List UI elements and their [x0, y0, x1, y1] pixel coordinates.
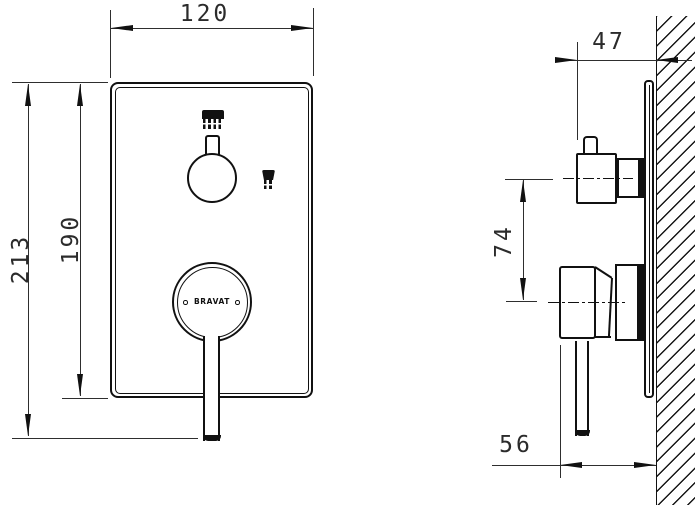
lever-end-cap	[203, 435, 221, 441]
extension-line	[12, 82, 108, 83]
hand-shower-icon	[264, 180, 273, 189]
extension-line	[110, 10, 111, 78]
arrowhead	[560, 462, 582, 468]
dim-projection-label: 56	[492, 433, 540, 457]
handle-dot-right	[235, 300, 240, 305]
overhead-shower-icon	[202, 110, 224, 119]
side-handle-taper-top	[594, 266, 612, 279]
handle-dot-left	[183, 300, 188, 305]
handle-lever-front	[203, 336, 220, 441]
wall-hatch	[656, 16, 695, 505]
arrowhead	[25, 414, 31, 436]
extension-line	[560, 345, 561, 478]
brand-logo: BRAVAT	[190, 297, 234, 307]
arrowhead	[656, 57, 678, 63]
arrowhead	[111, 25, 133, 31]
extension-line	[62, 398, 108, 399]
dim-center-distance-label: 74	[492, 208, 516, 274]
extension-line	[12, 438, 198, 439]
knob-centerline	[563, 178, 633, 179]
diverter-knob	[187, 153, 237, 203]
extension-line	[506, 301, 537, 302]
arrowhead	[77, 374, 83, 396]
dim-plate-height-label: 190	[59, 206, 83, 272]
dimension-line	[111, 28, 313, 29]
dim-depth-label: 47	[587, 30, 631, 54]
arrowhead	[555, 57, 577, 63]
extension-line	[505, 179, 553, 180]
extension-line	[577, 42, 578, 140]
side-handle-taper-edge	[608, 278, 613, 338]
handle-lever-side	[575, 341, 589, 436]
arrowhead	[520, 180, 526, 202]
overhead-shower-icon	[203, 119, 222, 129]
dim-overall-height-label: 213	[9, 226, 33, 292]
handle-centerline	[548, 302, 628, 303]
technical-drawing-canvas: BRAVAT 120 213 190 47	[0, 0, 695, 518]
extension-line	[313, 8, 314, 76]
wall-line	[656, 16, 658, 505]
arrowhead	[291, 25, 313, 31]
arrowhead	[77, 84, 83, 106]
arrowhead	[520, 278, 526, 300]
arrowhead	[25, 84, 31, 106]
arrowhead	[634, 462, 656, 468]
dim-front-width-label: 120	[175, 2, 235, 26]
side-handle-taper-bottom	[594, 336, 611, 338]
lever-end-cap	[575, 430, 590, 436]
hand-shower-icon	[262, 170, 275, 180]
side-plate-inner-line	[649, 85, 650, 393]
